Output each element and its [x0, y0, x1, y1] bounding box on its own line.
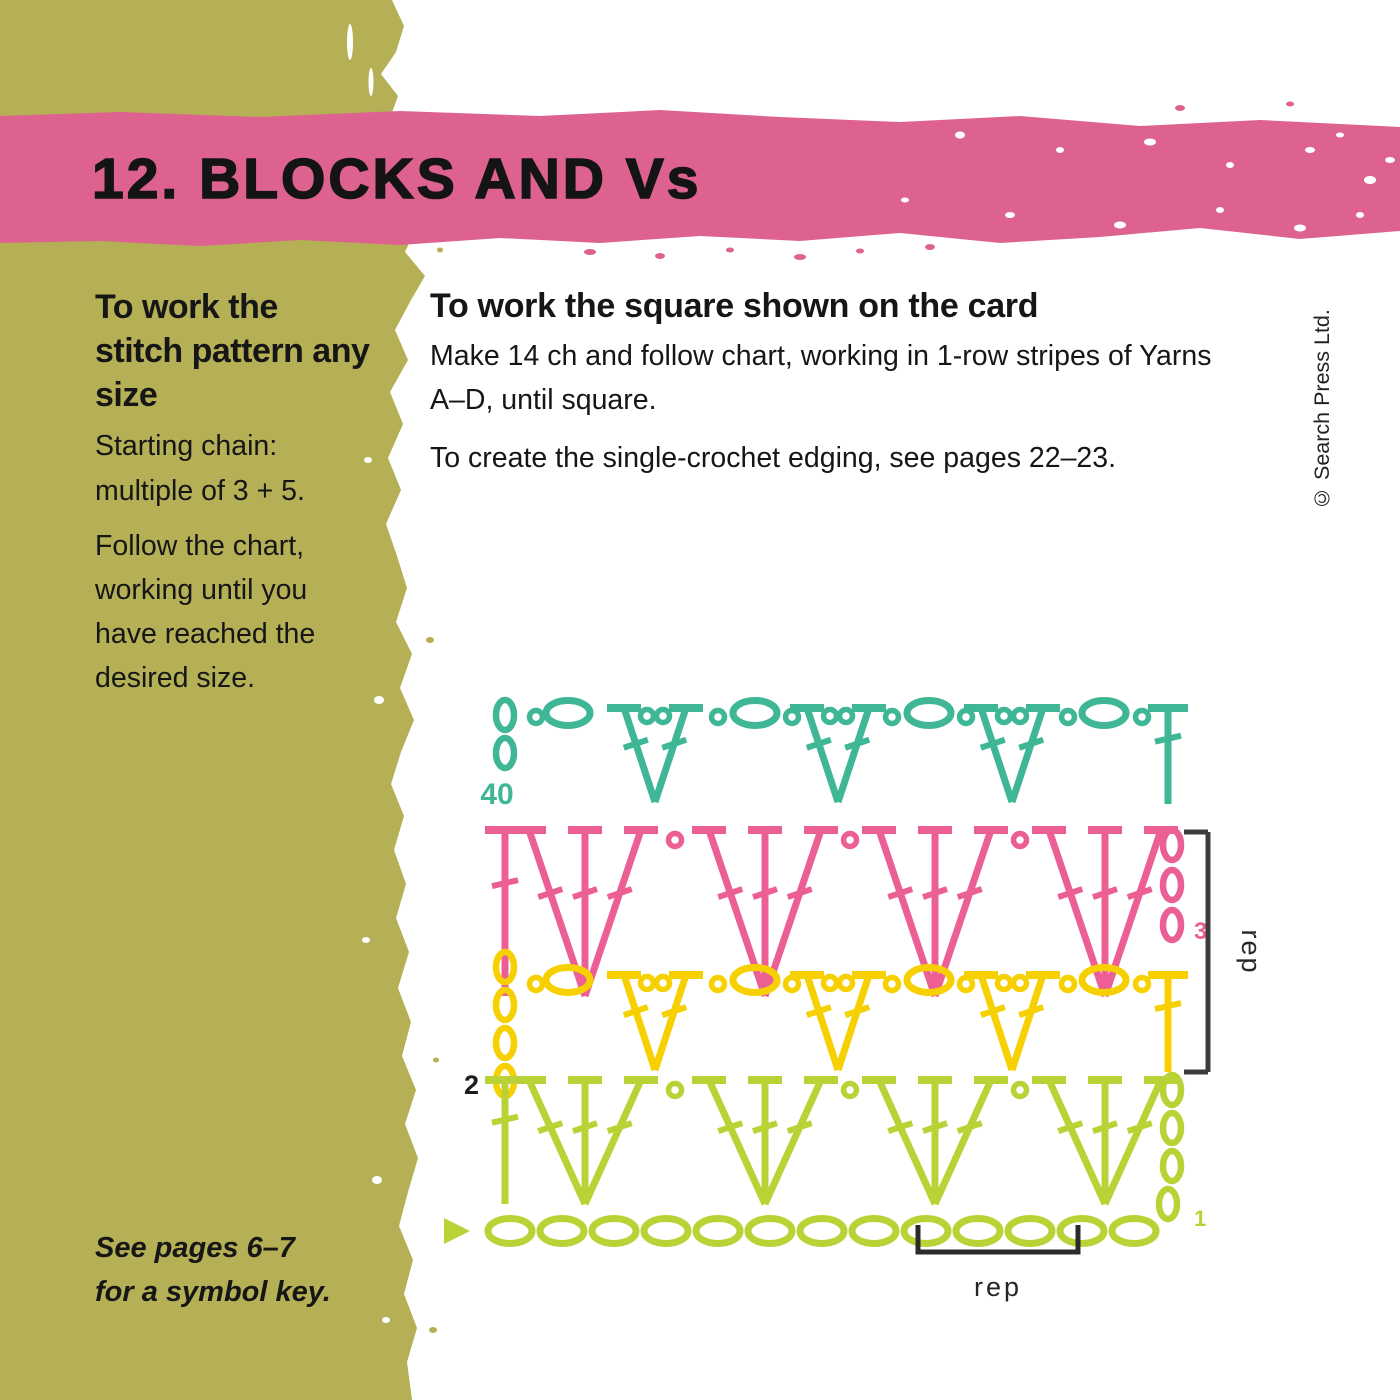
card-page: 12. BLOCKS AND Vs To work the stitch pat…	[0, 0, 1400, 1400]
svg-text:rep: rep	[974, 1272, 1022, 1302]
symbol-key-footnote: See pages 6–7 for a symbol key.	[95, 1226, 355, 1314]
svg-text:3: 3	[1194, 918, 1207, 945]
chart-row-40: 40	[480, 700, 1188, 811]
right-paragraph-edging: To create the single-crochet edging, see…	[430, 436, 1220, 480]
title-banner-brush	[0, 0, 1400, 280]
footnote-line-1: See pages 6–7	[95, 1226, 355, 1270]
left-paragraph-follow-chart: Follow the chart, working until you have…	[95, 524, 347, 700]
left-paragraph-starting-chain: Starting chain: multiple of 3 + 5.	[95, 424, 347, 514]
svg-text:rep: rep	[1236, 929, 1266, 974]
svg-text:40: 40	[480, 778, 513, 811]
foundation-chain-row	[444, 1218, 1156, 1244]
crochet-chart: 40321reprep	[430, 680, 1270, 1330]
chart-row-1: 1	[485, 1075, 1206, 1231]
left-heading: To work the stitch pattern any size	[95, 285, 370, 417]
svg-text:2: 2	[464, 1070, 479, 1100]
right-heading: To work the square shown on the card	[430, 287, 1220, 326]
svg-text:1: 1	[1194, 1206, 1206, 1231]
copyright-notice: © Search Press Ltd.	[1310, 272, 1350, 510]
start-marker-triangle	[444, 1218, 470, 1244]
repeat-bracket-vertical: rep	[1184, 832, 1266, 1072]
page-title: 12. BLOCKS AND Vs	[92, 146, 702, 212]
footnote-line-2: for a symbol key.	[95, 1270, 355, 1314]
right-paragraph-make-ch: Make 14 ch and follow chart, working in …	[430, 334, 1220, 422]
